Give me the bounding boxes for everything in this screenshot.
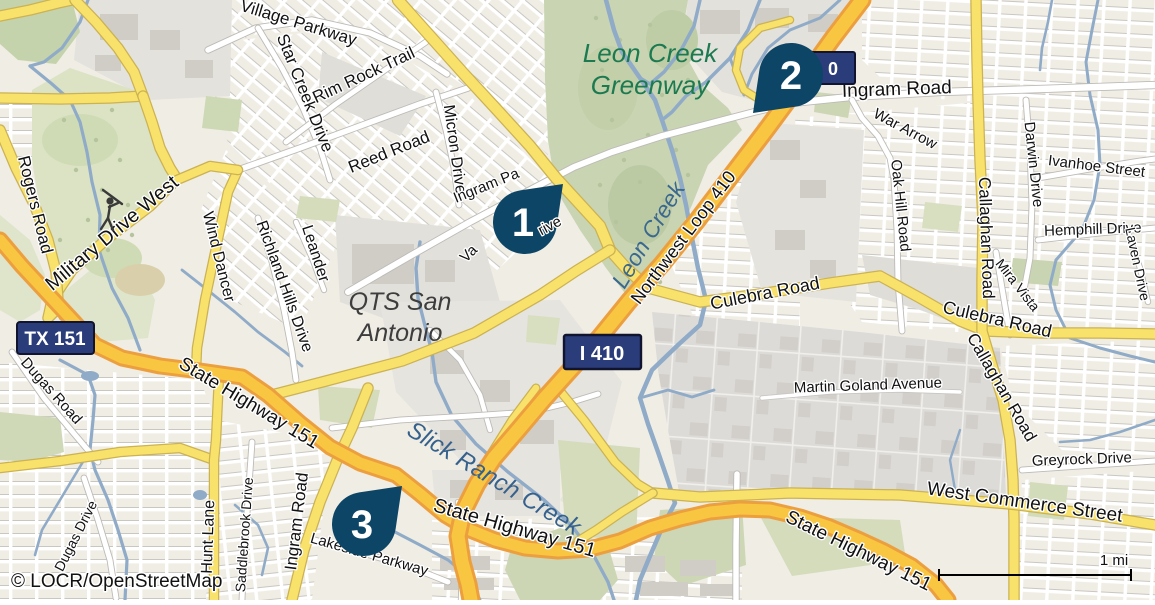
svg-text:Antonio: Antonio bbox=[356, 319, 443, 347]
svg-text:TX 151: TX 151 bbox=[24, 329, 86, 350]
svg-text:Hunt Lane: Hunt Lane bbox=[199, 500, 219, 574]
svg-text:I 410: I 410 bbox=[580, 343, 624, 365]
svg-text:1: 1 bbox=[512, 201, 534, 245]
svg-text:Greenway: Greenway bbox=[591, 70, 711, 100]
svg-text:2: 2 bbox=[780, 54, 802, 98]
svg-text:Leon Creek: Leon Creek bbox=[583, 38, 719, 68]
svg-text:1 mi: 1 mi bbox=[1100, 552, 1128, 569]
svg-text:3: 3 bbox=[351, 503, 373, 547]
svg-text:Greyrock Drive: Greyrock Drive bbox=[1032, 449, 1133, 469]
svg-text:© LOCR/OpenStreetMap: © LOCR/OpenStreetMap bbox=[11, 571, 222, 592]
svg-text:Ingram Road: Ingram Road bbox=[842, 77, 953, 102]
svg-text:0: 0 bbox=[828, 59, 838, 79]
svg-text:QTS San: QTS San bbox=[349, 288, 452, 316]
